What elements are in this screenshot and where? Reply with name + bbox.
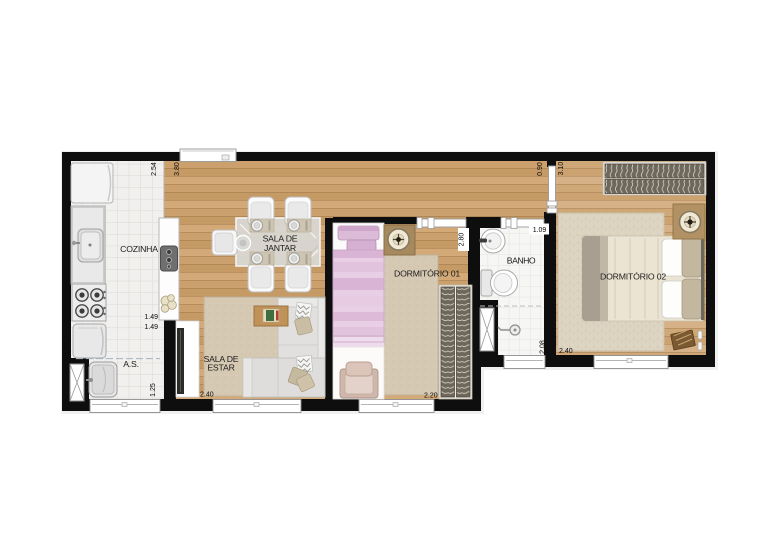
svg-text:SALA DE: SALA DE — [263, 234, 298, 244]
svg-text:2.54: 2.54 — [151, 162, 158, 176]
svg-text:2.08: 2.08 — [540, 340, 547, 354]
svg-text:JANTAR: JANTAR — [264, 243, 296, 253]
svg-text:3.80: 3.80 — [174, 162, 181, 176]
svg-text:DORMITÓRIO 01: DORMITÓRIO 01 — [394, 269, 460, 279]
svg-text:2.20: 2.20 — [424, 393, 438, 400]
svg-text:BANHO: BANHO — [507, 256, 536, 266]
svg-text:COZINHA: COZINHA — [120, 244, 158, 254]
svg-text:3.10: 3.10 — [558, 162, 565, 176]
svg-text:1.49: 1.49 — [144, 324, 158, 331]
svg-text:DORMITÓRIO 02: DORMITÓRIO 02 — [600, 272, 666, 282]
svg-text:A.S.: A.S. — [123, 359, 139, 369]
svg-text:ESTAR: ESTAR — [207, 363, 234, 373]
svg-text:1.09: 1.09 — [533, 227, 547, 234]
svg-text:1.25: 1.25 — [150, 383, 157, 397]
svg-text:1.49: 1.49 — [144, 314, 158, 321]
svg-text:2.40: 2.40 — [200, 392, 214, 399]
svg-text:2.80: 2.80 — [459, 233, 466, 247]
svg-text:0.90: 0.90 — [537, 162, 544, 176]
svg-text:2.40: 2.40 — [559, 348, 573, 355]
